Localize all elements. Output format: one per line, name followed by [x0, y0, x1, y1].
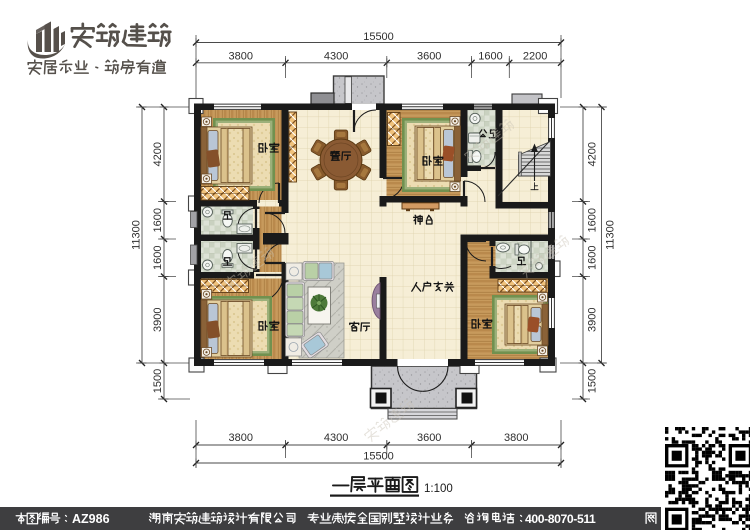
svg-text:3900: 3900	[152, 308, 164, 332]
svg-text:11300: 11300	[605, 220, 617, 250]
svg-text:3800: 3800	[504, 432, 528, 444]
svg-text:1:100: 1:100	[424, 483, 453, 495]
svg-text:1600: 1600	[152, 208, 164, 232]
svg-text:3600: 3600	[417, 50, 441, 62]
svg-text:3600: 3600	[417, 432, 441, 444]
svg-text:15500: 15500	[363, 451, 394, 463]
svg-text:AZ986: AZ986	[72, 512, 110, 526]
svg-text:1600: 1600	[587, 208, 599, 232]
svg-text:400-8070-511: 400-8070-511	[525, 512, 596, 526]
svg-text:1500: 1500	[152, 369, 164, 393]
svg-text:4200: 4200	[587, 142, 599, 166]
svg-text:1500: 1500	[587, 369, 599, 393]
svg-text:11300: 11300	[131, 220, 143, 250]
svg-text:4300: 4300	[324, 432, 348, 444]
svg-text:15500: 15500	[363, 31, 394, 43]
svg-text:1600: 1600	[587, 246, 599, 270]
svg-text:2200: 2200	[523, 50, 547, 62]
svg-text:1600: 1600	[478, 50, 502, 62]
svg-text:3900: 3900	[587, 308, 599, 332]
svg-text:4200: 4200	[152, 142, 164, 166]
svg-text:1600: 1600	[152, 246, 164, 270]
svg-text:3800: 3800	[229, 432, 253, 444]
svg-text:3800: 3800	[229, 50, 253, 62]
svg-text:4300: 4300	[324, 50, 348, 62]
